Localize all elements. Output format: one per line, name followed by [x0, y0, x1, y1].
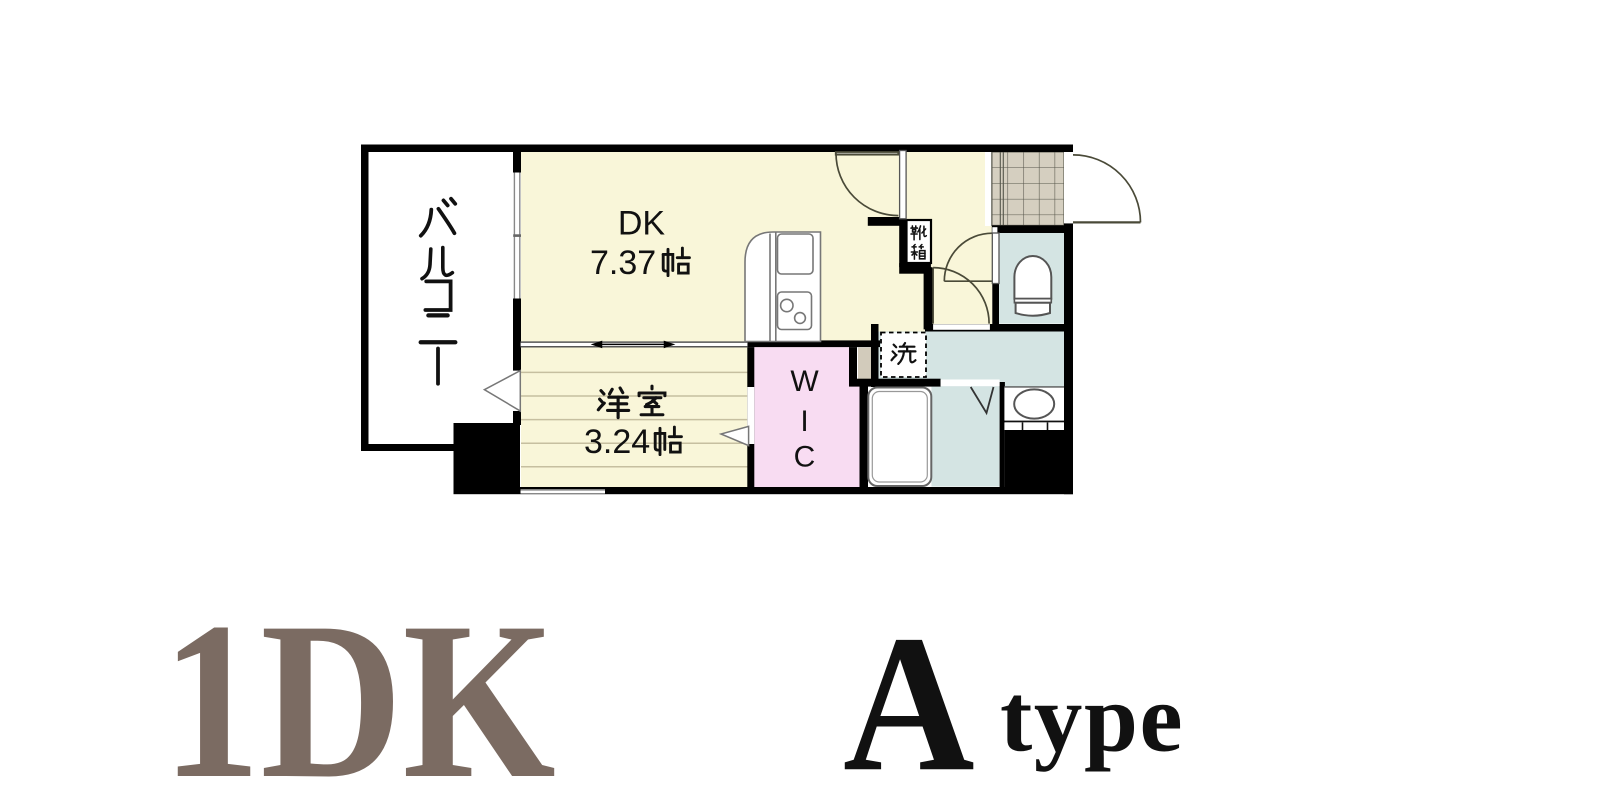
svg-text:DK: DK — [618, 205, 666, 243]
svg-text:A: A — [843, 594, 975, 800]
svg-text:type: type — [1000, 665, 1184, 772]
svg-text:1DK: 1DK — [162, 576, 556, 800]
svg-text:C: C — [794, 440, 816, 473]
svg-text:7.37: 7.37 — [590, 244, 656, 282]
svg-text:W: W — [790, 365, 819, 398]
svg-text:I: I — [800, 405, 808, 438]
svg-text:3.24: 3.24 — [584, 423, 650, 461]
